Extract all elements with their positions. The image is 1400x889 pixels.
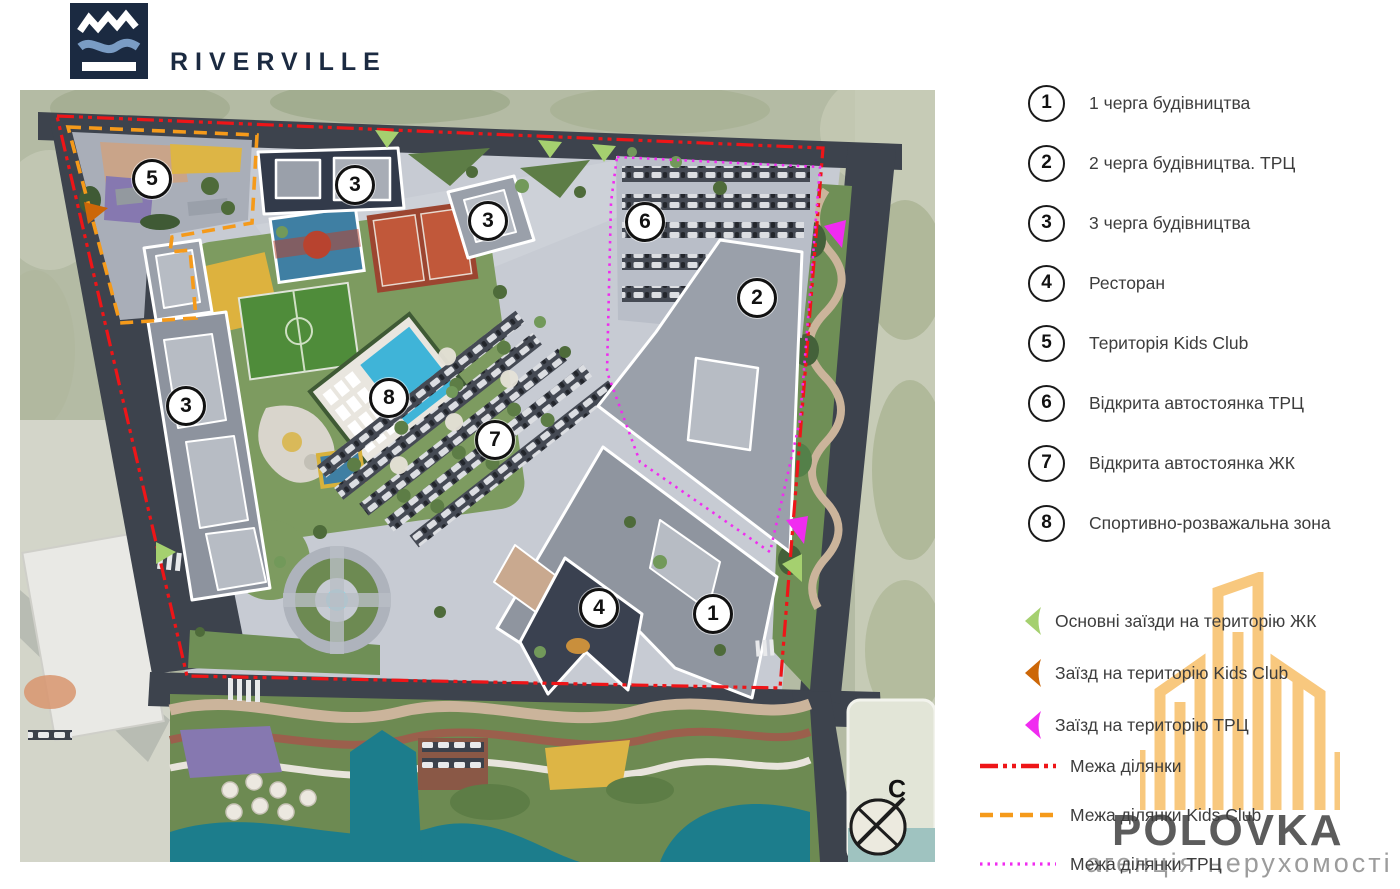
legend-number-badge: 3 bbox=[1028, 205, 1065, 242]
legend-number-badge: 5 bbox=[1028, 325, 1065, 362]
legend-number-badge: 7 bbox=[1028, 445, 1065, 482]
legend-number-badge: 4 bbox=[1028, 265, 1065, 302]
entrance-arrow-icon bbox=[1025, 659, 1041, 687]
map-badge-3: 3 bbox=[335, 165, 375, 205]
boundary-label: Межа ділянки Kids Club bbox=[1070, 805, 1261, 826]
brand-logo: RIVERVILLE bbox=[70, 3, 387, 79]
riverville-logo-icon bbox=[70, 3, 148, 79]
entrance-legend-item: Заїзд на територію ТРЦ bbox=[1025, 708, 1395, 742]
entrance-label: Заїзд на територію ТРЦ bbox=[1055, 715, 1249, 736]
brand-name: RIVERVILLE bbox=[170, 48, 387, 77]
map-badge-5: 5 bbox=[132, 159, 172, 199]
legend-item-label: 1 черга будівництва bbox=[1089, 93, 1250, 114]
riverside-park bbox=[170, 694, 820, 862]
legend-item-label: 2 черга будівництва. ТРЦ bbox=[1089, 153, 1295, 174]
legend-boundaries: Межа ділянки Межа ділянки Kids Club Межа… bbox=[980, 752, 1400, 889]
entrance-legend-item: Основні заїзди на територію ЖК bbox=[1025, 604, 1395, 638]
site-plan-map: 5336283741 С bbox=[20, 90, 935, 862]
map-badge-7: 7 bbox=[475, 420, 515, 460]
boundary-legend-item: Межа ділянки Kids Club bbox=[980, 801, 1400, 829]
legend-item-1: 1 1 черга будівництва bbox=[1028, 84, 1388, 122]
legend-item-7: 7 Відкрита автостоянка ЖК bbox=[1028, 444, 1388, 482]
boundary-line-icon bbox=[980, 810, 1056, 820]
boundary-line-icon bbox=[980, 761, 1056, 771]
legend-number-badge: 2 bbox=[1028, 145, 1065, 182]
map-badge-1: 1 bbox=[693, 594, 733, 634]
map-badge-8: 8 bbox=[369, 378, 409, 418]
boundary-line-icon bbox=[980, 859, 1056, 869]
entrance-arrow-icon bbox=[1025, 711, 1041, 739]
legend-number-badge: 1 bbox=[1028, 85, 1065, 122]
legend-number-badge: 6 bbox=[1028, 385, 1065, 422]
legend-item-label: Спортивно-розважальна зона bbox=[1089, 513, 1331, 534]
legend-item-3: 3 3 черга будівництва bbox=[1028, 204, 1388, 242]
riverville-masterplan-page: { "brand": { "name": "RIVERVILLE" }, "ma… bbox=[0, 0, 1400, 889]
legend-item-4: 4 Ресторан bbox=[1028, 264, 1388, 302]
legend-item-label: Відкрита автостоянка ТРЦ bbox=[1089, 393, 1304, 414]
legend-item-label: Ресторан bbox=[1089, 273, 1165, 294]
map-badge-4: 4 bbox=[579, 588, 619, 628]
entrance-legend-item: Заїзд на територію Kids Club bbox=[1025, 656, 1395, 690]
legend-number-badge: 8 bbox=[1028, 505, 1065, 542]
legend-numbered: 1 1 черга будівництва 2 2 черга будівниц… bbox=[1028, 84, 1388, 564]
boundary-legend-item: Межа ділянки bbox=[980, 752, 1400, 780]
compass-north-label: С bbox=[888, 776, 906, 805]
entrance-label: Основні заїзди на територію ЖК bbox=[1055, 611, 1316, 632]
legend-item-2: 2 2 черга будівництва. ТРЦ bbox=[1028, 144, 1388, 182]
entrance-label: Заїзд на територію Kids Club bbox=[1055, 663, 1288, 684]
boundary-label: Межа ділянки ТРЦ bbox=[1070, 854, 1222, 875]
legend-item-label: Відкрита автостоянка ЖК bbox=[1089, 453, 1295, 474]
legend-item-label: 3 черга будівництва bbox=[1089, 213, 1250, 234]
map-badge-6: 6 bbox=[625, 202, 665, 242]
entrance-arrow-icon bbox=[1025, 607, 1041, 635]
map-badge-2: 2 bbox=[737, 278, 777, 318]
boundary-label: Межа ділянки bbox=[1070, 756, 1182, 777]
boundary-legend-item: Межа ділянки ТРЦ bbox=[980, 850, 1400, 878]
map-badge-3: 3 bbox=[166, 386, 206, 426]
legend-item-6: 6 Відкрита автостоянка ТРЦ bbox=[1028, 384, 1388, 422]
legend-item-8: 8 Спортивно-розважальна зона bbox=[1028, 504, 1388, 542]
roundabout-fountain bbox=[283, 546, 391, 654]
legend-item-5: 5 Територія Kids Club bbox=[1028, 324, 1388, 362]
legend-item-label: Територія Kids Club bbox=[1089, 333, 1248, 354]
legend-entrances: Основні заїзди на територію ЖК Заїзд на … bbox=[1025, 604, 1395, 760]
map-badge-3: 3 bbox=[468, 201, 508, 241]
